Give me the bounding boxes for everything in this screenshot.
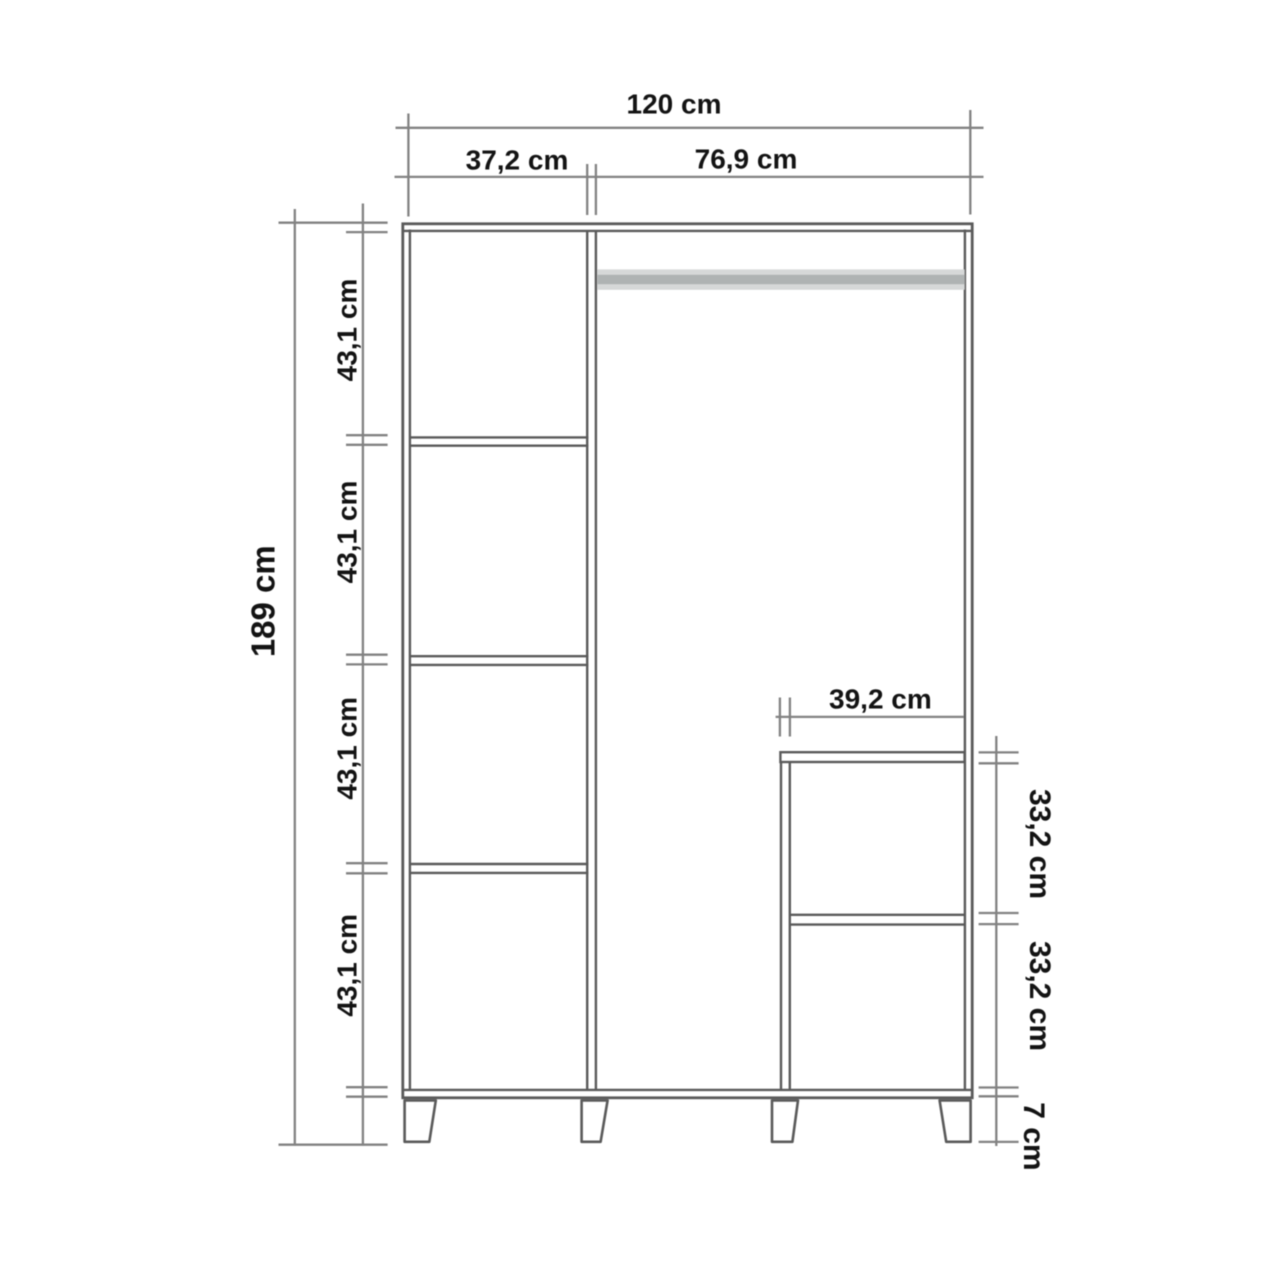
svg-text:33,2 cm: 33,2 cm — [1023, 941, 1056, 1051]
svg-text:43,1 cm: 43,1 cm — [332, 697, 363, 800]
svg-text:7 cm: 7 cm — [1017, 1102, 1050, 1170]
svg-text:76,9 cm: 76,9 cm — [695, 144, 798, 175]
svg-text:39,2 cm: 39,2 cm — [829, 684, 932, 715]
svg-text:33,2 cm: 33,2 cm — [1023, 789, 1056, 899]
svg-text:37,2 cm: 37,2 cm — [466, 144, 569, 175]
svg-text:43,1 cm: 43,1 cm — [332, 279, 363, 382]
svg-text:43,1 cm: 43,1 cm — [332, 914, 363, 1017]
svg-text:43,1 cm: 43,1 cm — [332, 481, 363, 584]
svg-text:120 cm: 120 cm — [627, 88, 722, 119]
svg-text:189 cm: 189 cm — [245, 545, 282, 657]
